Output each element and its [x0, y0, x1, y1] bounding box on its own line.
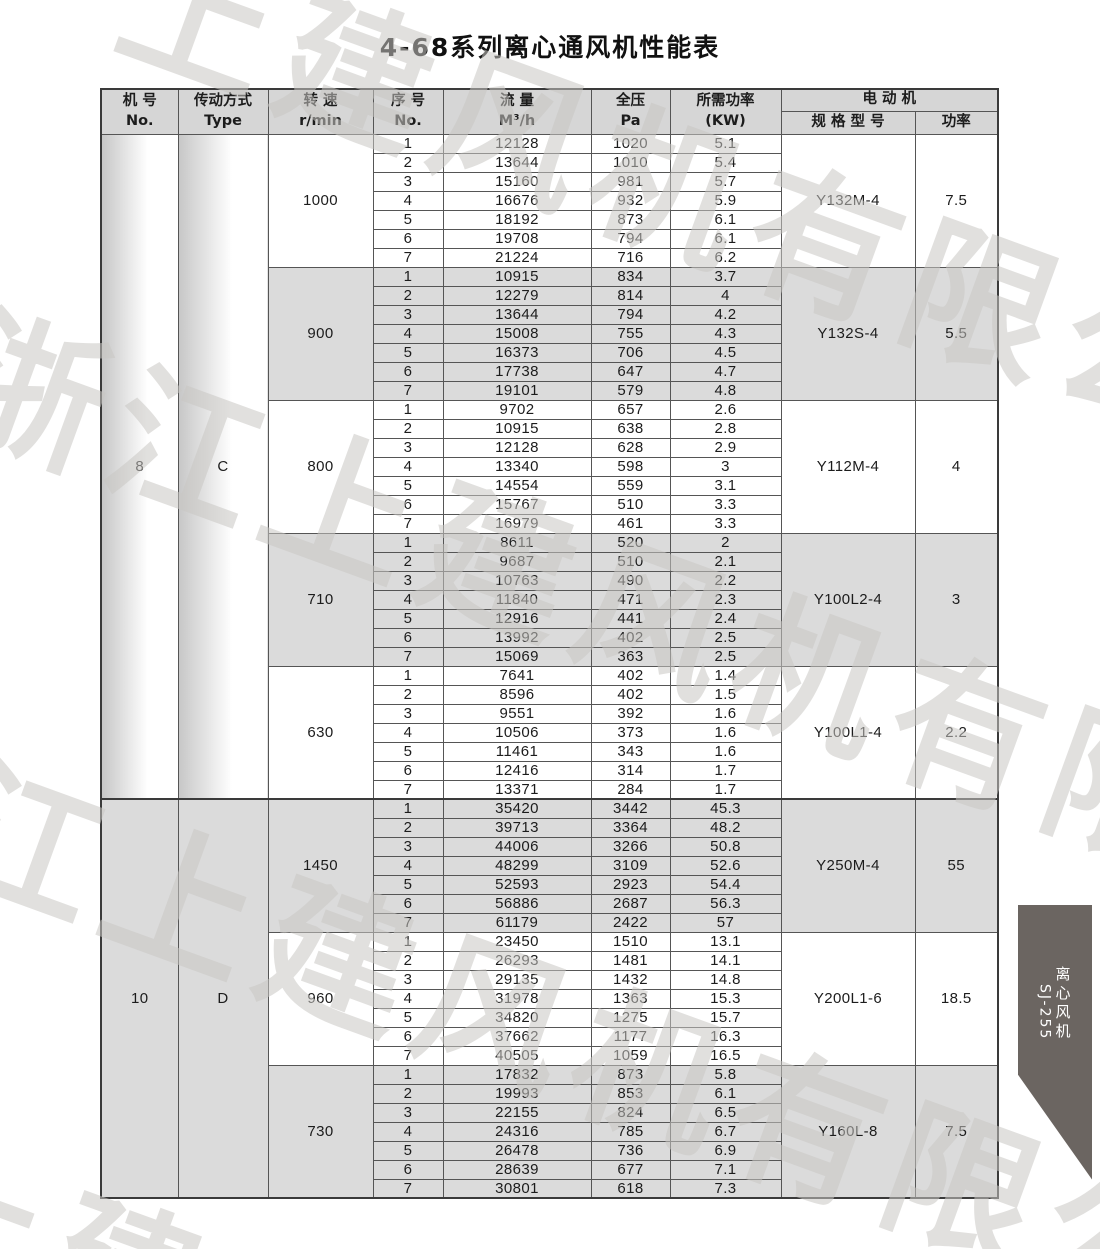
seq-cell: 4 [373, 856, 443, 875]
power-cell: 6.1 [670, 1084, 781, 1103]
motor-power-cell: 7.5 [915, 134, 998, 267]
flow-cell: 16676 [443, 191, 591, 210]
pressure-cell: 3442 [591, 799, 670, 818]
seq-cell: 5 [373, 1008, 443, 1027]
flow-cell: 44006 [443, 837, 591, 856]
side-tab: 离心风机 SJ-255 [1018, 905, 1092, 1188]
seq-cell: 3 [373, 970, 443, 989]
seq-cell: 7 [373, 1046, 443, 1065]
seq-cell: 7 [373, 913, 443, 932]
seq-cell: 3 [373, 172, 443, 191]
flow-cell: 12416 [443, 761, 591, 780]
power-cell: 4.5 [670, 343, 781, 362]
seq-cell: 5 [373, 476, 443, 495]
col-header-pressure: 全压Pa [591, 89, 670, 134]
flow-cell: 12279 [443, 286, 591, 305]
pressure-cell: 1275 [591, 1008, 670, 1027]
power-cell: 48.2 [670, 818, 781, 837]
pressure-cell: 932 [591, 191, 670, 210]
power-cell: 6.5 [670, 1103, 781, 1122]
pressure-cell: 520 [591, 533, 670, 552]
pressure-cell: 677 [591, 1160, 670, 1179]
flow-cell: 15008 [443, 324, 591, 343]
page-title: 4-68系列离心通风机性能表 [0, 28, 1100, 64]
power-cell: 2.3 [670, 590, 781, 609]
header-line: 所需功率 [671, 92, 781, 112]
power-cell: 1.6 [670, 723, 781, 742]
speed-cell: 1000 [268, 134, 373, 267]
flow-cell: 39713 [443, 818, 591, 837]
seq-cell: 5 [373, 343, 443, 362]
flow-cell: 19708 [443, 229, 591, 248]
motor-model-cell: Y100L1-4 [781, 666, 915, 799]
pressure-cell: 1481 [591, 951, 670, 970]
flow-cell: 12916 [443, 609, 591, 628]
power-cell: 5.9 [670, 191, 781, 210]
header-row-1: 机 号No.传动方式Type转 速r/min序 号No.流 量M³/h全压Pa所… [101, 89, 998, 111]
power-cell: 5.4 [670, 153, 781, 172]
power-cell: 7.3 [670, 1179, 781, 1198]
power-cell: 1.7 [670, 780, 781, 799]
pressure-cell: 1020 [591, 134, 670, 153]
pressure-cell: 1363 [591, 989, 670, 1008]
pressure-cell: 1177 [591, 1027, 670, 1046]
power-cell: 2.5 [670, 647, 781, 666]
flow-cell: 10763 [443, 571, 591, 590]
pressure-cell: 2687 [591, 894, 670, 913]
power-cell: 50.8 [670, 837, 781, 856]
seq-cell: 4 [373, 590, 443, 609]
seq-cell: 2 [373, 818, 443, 837]
pressure-cell: 441 [591, 609, 670, 628]
flow-cell: 35420 [443, 799, 591, 818]
flow-cell: 9551 [443, 704, 591, 723]
pressure-cell: 647 [591, 362, 670, 381]
header-line: No. [102, 112, 178, 132]
flow-cell: 12128 [443, 134, 591, 153]
pressure-cell: 638 [591, 419, 670, 438]
flow-cell: 13644 [443, 153, 591, 172]
power-cell: 5.8 [670, 1065, 781, 1084]
motor-model-cell: Y100L2-4 [781, 533, 915, 666]
seq-cell: 5 [373, 609, 443, 628]
seq-cell: 2 [373, 419, 443, 438]
flow-cell: 48299 [443, 856, 591, 875]
seq-cell: 4 [373, 723, 443, 742]
flow-cell: 10915 [443, 267, 591, 286]
power-cell: 4.3 [670, 324, 781, 343]
motor-power-cell: 5.5 [915, 267, 998, 400]
pressure-cell: 402 [591, 685, 670, 704]
flow-cell: 19993 [443, 1084, 591, 1103]
power-cell: 6.1 [670, 229, 781, 248]
power-cell: 2.1 [670, 552, 781, 571]
flow-cell: 9702 [443, 400, 591, 419]
pressure-cell: 1010 [591, 153, 670, 172]
seq-cell: 7 [373, 647, 443, 666]
col-header-speed: 转 速r/min [268, 89, 373, 134]
power-cell: 54.4 [670, 875, 781, 894]
seq-cell: 5 [373, 742, 443, 761]
seq-cell: 4 [373, 989, 443, 1008]
pressure-cell: 618 [591, 1179, 670, 1198]
seq-cell: 7 [373, 381, 443, 400]
seq-cell: 1 [373, 1065, 443, 1084]
pressure-cell: 2422 [591, 913, 670, 932]
power-cell: 13.1 [670, 932, 781, 951]
seq-cell: 4 [373, 191, 443, 210]
power-cell: 6.9 [670, 1141, 781, 1160]
motor-power-cell: 7.5 [915, 1065, 998, 1198]
pressure-cell: 716 [591, 248, 670, 267]
seq-cell: 3 [373, 438, 443, 457]
pressure-cell: 2923 [591, 875, 670, 894]
col-header-motor-power: 功率 [915, 111, 998, 134]
seq-cell: 1 [373, 134, 443, 153]
pressure-cell: 794 [591, 305, 670, 324]
seq-cell: 6 [373, 1160, 443, 1179]
motor-power-cell: 55 [915, 799, 998, 932]
pressure-cell: 471 [591, 590, 670, 609]
flow-cell: 23450 [443, 932, 591, 951]
seq-cell: 4 [373, 1122, 443, 1141]
pressure-cell: 461 [591, 514, 670, 533]
side-tab-category: 离心风机 [1053, 966, 1074, 1042]
flow-cell: 40505 [443, 1046, 591, 1065]
motor-model-cell: Y112M-4 [781, 400, 915, 533]
seq-cell: 3 [373, 704, 443, 723]
seq-cell: 6 [373, 229, 443, 248]
pressure-cell: 559 [591, 476, 670, 495]
power-cell: 6.1 [670, 210, 781, 229]
pressure-cell: 1432 [591, 970, 670, 989]
flow-cell: 8611 [443, 533, 591, 552]
power-cell: 2.5 [670, 628, 781, 647]
header-line: 序 号 [374, 92, 443, 112]
seq-cell: 6 [373, 362, 443, 381]
speed-cell: 960 [268, 932, 373, 1065]
fan-no-cell: 8 [101, 134, 178, 799]
motor-power-cell: 18.5 [915, 932, 998, 1065]
power-cell: 6.7 [670, 1122, 781, 1141]
header-line: M³/h [444, 112, 591, 132]
header-line: 传动方式 [179, 92, 268, 112]
flow-cell: 13992 [443, 628, 591, 647]
flow-cell: 14554 [443, 476, 591, 495]
power-cell: 57 [670, 913, 781, 932]
pressure-cell: 373 [591, 723, 670, 742]
seq-cell: 7 [373, 514, 443, 533]
col-header-power: 所需功率(KW) [670, 89, 781, 134]
pressure-cell: 657 [591, 400, 670, 419]
flow-cell: 22155 [443, 1103, 591, 1122]
power-cell: 14.1 [670, 951, 781, 970]
header-line: Pa [592, 112, 670, 132]
power-cell: 2.9 [670, 438, 781, 457]
motor-model-cell: Y160L-8 [781, 1065, 915, 1198]
seq-cell: 1 [373, 932, 443, 951]
data-row: 10D1450135420344245.3Y250M-455 [101, 799, 998, 818]
seq-cell: 2 [373, 286, 443, 305]
speed-cell: 900 [268, 267, 373, 400]
seq-cell: 7 [373, 780, 443, 799]
header-line: 转 速 [269, 92, 373, 112]
col-header-type: 传动方式Type [178, 89, 268, 134]
power-cell: 1.5 [670, 685, 781, 704]
power-cell: 1.4 [670, 666, 781, 685]
seq-cell: 2 [373, 685, 443, 704]
power-cell: 14.8 [670, 970, 781, 989]
flow-cell: 29135 [443, 970, 591, 989]
power-cell: 5.1 [670, 134, 781, 153]
flow-cell: 17738 [443, 362, 591, 381]
flow-cell: 15160 [443, 172, 591, 191]
motor-power-cell: 4 [915, 400, 998, 533]
flow-cell: 7641 [443, 666, 591, 685]
power-cell: 3.7 [670, 267, 781, 286]
power-cell: 16.5 [670, 1046, 781, 1065]
pressure-cell: 873 [591, 210, 670, 229]
pressure-cell: 1510 [591, 932, 670, 951]
pressure-cell: 706 [591, 343, 670, 362]
side-tab-text: 离心风机 SJ-255 [1037, 919, 1074, 1089]
table-header: 机 号No.传动方式Type转 速r/min序 号No.流 量M³/h全压Pa所… [101, 89, 998, 134]
motor-model-cell: Y200L1-6 [781, 932, 915, 1065]
seq-cell: 5 [373, 875, 443, 894]
seq-cell: 4 [373, 457, 443, 476]
seq-cell: 6 [373, 761, 443, 780]
seq-cell: 1 [373, 400, 443, 419]
power-cell: 45.3 [670, 799, 781, 818]
motor-model-cell: Y132M-4 [781, 134, 915, 267]
seq-cell: 3 [373, 305, 443, 324]
flow-cell: 17832 [443, 1065, 591, 1084]
seq-cell: 5 [373, 1141, 443, 1160]
col-header-jihao: 机 号No. [101, 89, 178, 134]
flow-cell: 31978 [443, 989, 591, 1008]
pressure-cell: 402 [591, 666, 670, 685]
power-cell: 5.7 [670, 172, 781, 191]
power-cell: 4.7 [670, 362, 781, 381]
pressure-cell: 834 [591, 267, 670, 286]
drive-type-cell: C [178, 134, 268, 799]
seq-cell: 3 [373, 837, 443, 856]
seq-cell: 7 [373, 1179, 443, 1198]
flow-cell: 12128 [443, 438, 591, 457]
power-cell: 1.7 [670, 761, 781, 780]
flow-cell: 10506 [443, 723, 591, 742]
pressure-cell: 853 [591, 1084, 670, 1103]
power-cell: 4 [670, 286, 781, 305]
flow-cell: 24316 [443, 1122, 591, 1141]
header-line: Type [179, 112, 268, 132]
seq-cell: 6 [373, 628, 443, 647]
power-cell: 2.2 [670, 571, 781, 590]
flow-cell: 34820 [443, 1008, 591, 1027]
power-cell: 2.6 [670, 400, 781, 419]
flow-cell: 11840 [443, 590, 591, 609]
flow-cell: 13644 [443, 305, 591, 324]
pressure-cell: 490 [591, 571, 670, 590]
power-cell: 4.8 [670, 381, 781, 400]
data-row: 8C100011212810205.1Y132M-47.5 [101, 134, 998, 153]
power-cell: 3 [670, 457, 781, 476]
pressure-cell: 314 [591, 761, 670, 780]
seq-cell: 1 [373, 666, 443, 685]
flow-cell: 37662 [443, 1027, 591, 1046]
col-header-motor-model: 规 格 型 号 [781, 111, 915, 134]
pressure-cell: 628 [591, 438, 670, 457]
table-container: 机 号No.传动方式Type转 速r/min序 号No.流 量M³/h全压Pa所… [100, 88, 999, 1199]
pressure-cell: 981 [591, 172, 670, 191]
col-header-motor-group: 电 动 机 [781, 89, 998, 111]
power-cell: 2.4 [670, 609, 781, 628]
power-cell: 2.8 [670, 419, 781, 438]
pressure-cell: 3364 [591, 818, 670, 837]
power-cell: 6.2 [670, 248, 781, 267]
power-cell: 16.3 [670, 1027, 781, 1046]
flow-cell: 9687 [443, 552, 591, 571]
power-cell: 3.3 [670, 495, 781, 514]
flow-cell: 26478 [443, 1141, 591, 1160]
power-cell: 1.6 [670, 704, 781, 723]
power-cell: 3.1 [670, 476, 781, 495]
pressure-cell: 736 [591, 1141, 670, 1160]
pressure-cell: 1059 [591, 1046, 670, 1065]
header-line: r/min [269, 112, 373, 132]
seq-cell: 6 [373, 894, 443, 913]
flow-cell: 10915 [443, 419, 591, 438]
pressure-cell: 598 [591, 457, 670, 476]
speed-cell: 730 [268, 1065, 373, 1198]
performance-table: 机 号No.传动方式Type转 速r/min序 号No.流 量M³/h全压Pa所… [100, 88, 999, 1199]
flow-cell: 15767 [443, 495, 591, 514]
flow-cell: 13371 [443, 780, 591, 799]
drive-type-cell: D [178, 799, 268, 1198]
seq-cell: 6 [373, 1027, 443, 1046]
seq-cell: 1 [373, 799, 443, 818]
header-line: No. [374, 112, 443, 132]
motor-model-cell: Y132S-4 [781, 267, 915, 400]
seq-cell: 3 [373, 571, 443, 590]
flow-cell: 8596 [443, 685, 591, 704]
pressure-cell: 785 [591, 1122, 670, 1141]
seq-cell: 1 [373, 533, 443, 552]
seq-cell: 5 [373, 210, 443, 229]
pressure-cell: 755 [591, 324, 670, 343]
fan-no-cell: 10 [101, 799, 178, 1198]
power-cell: 7.1 [670, 1160, 781, 1179]
header-line: 机 号 [102, 92, 178, 112]
flow-cell: 21224 [443, 248, 591, 267]
flow-cell: 61179 [443, 913, 591, 932]
flow-cell: 30801 [443, 1179, 591, 1198]
flow-cell: 26293 [443, 951, 591, 970]
power-cell: 56.3 [670, 894, 781, 913]
flow-cell: 13340 [443, 457, 591, 476]
speed-cell: 1450 [268, 799, 373, 932]
speed-cell: 630 [268, 666, 373, 799]
flow-cell: 11461 [443, 742, 591, 761]
flow-cell: 16979 [443, 514, 591, 533]
speed-cell: 710 [268, 533, 373, 666]
flow-cell: 28639 [443, 1160, 591, 1179]
side-tab-model: SJ-255 [1037, 984, 1053, 1040]
pressure-cell: 3109 [591, 856, 670, 875]
pressure-cell: 794 [591, 229, 670, 248]
seq-cell: 3 [373, 1103, 443, 1122]
pressure-cell: 402 [591, 628, 670, 647]
seq-cell: 2 [373, 153, 443, 172]
flow-cell: 52593 [443, 875, 591, 894]
pressure-cell: 284 [591, 780, 670, 799]
speed-cell: 800 [268, 400, 373, 533]
power-cell: 1.6 [670, 742, 781, 761]
power-cell: 3.3 [670, 514, 781, 533]
power-cell: 15.7 [670, 1008, 781, 1027]
pressure-cell: 814 [591, 286, 670, 305]
pressure-cell: 579 [591, 381, 670, 400]
seq-cell: 6 [373, 495, 443, 514]
motor-power-cell: 2.2 [915, 666, 998, 799]
power-cell: 52.6 [670, 856, 781, 875]
header-line: 全压 [592, 92, 670, 112]
seq-cell: 4 [373, 324, 443, 343]
motor-power-cell: 3 [915, 533, 998, 666]
col-header-flow: 流 量M³/h [443, 89, 591, 134]
pressure-cell: 3266 [591, 837, 670, 856]
seq-cell: 2 [373, 1084, 443, 1103]
pressure-cell: 510 [591, 495, 670, 514]
pressure-cell: 873 [591, 1065, 670, 1084]
catalog-page: 4-68系列离心通风机性能表 机 号No.传动方式Type转 速r/min序 号… [0, 0, 1100, 1249]
table-body: 8C100011212810205.1Y132M-47.521364410105… [101, 134, 998, 1198]
pressure-cell: 363 [591, 647, 670, 666]
pressure-cell: 392 [591, 704, 670, 723]
header-line: (KW) [671, 112, 781, 132]
pressure-cell: 343 [591, 742, 670, 761]
power-cell: 4.2 [670, 305, 781, 324]
col-header-xuhao: 序 号No. [373, 89, 443, 134]
flow-cell: 56886 [443, 894, 591, 913]
seq-cell: 2 [373, 951, 443, 970]
power-cell: 2 [670, 533, 781, 552]
flow-cell: 19101 [443, 381, 591, 400]
flow-cell: 15069 [443, 647, 591, 666]
seq-cell: 1 [373, 267, 443, 286]
seq-cell: 2 [373, 552, 443, 571]
header-line: 流 量 [444, 92, 591, 112]
power-cell: 15.3 [670, 989, 781, 1008]
seq-cell: 7 [373, 248, 443, 267]
pressure-cell: 824 [591, 1103, 670, 1122]
flow-cell: 16373 [443, 343, 591, 362]
pressure-cell: 510 [591, 552, 670, 571]
flow-cell: 18192 [443, 210, 591, 229]
motor-model-cell: Y250M-4 [781, 799, 915, 932]
